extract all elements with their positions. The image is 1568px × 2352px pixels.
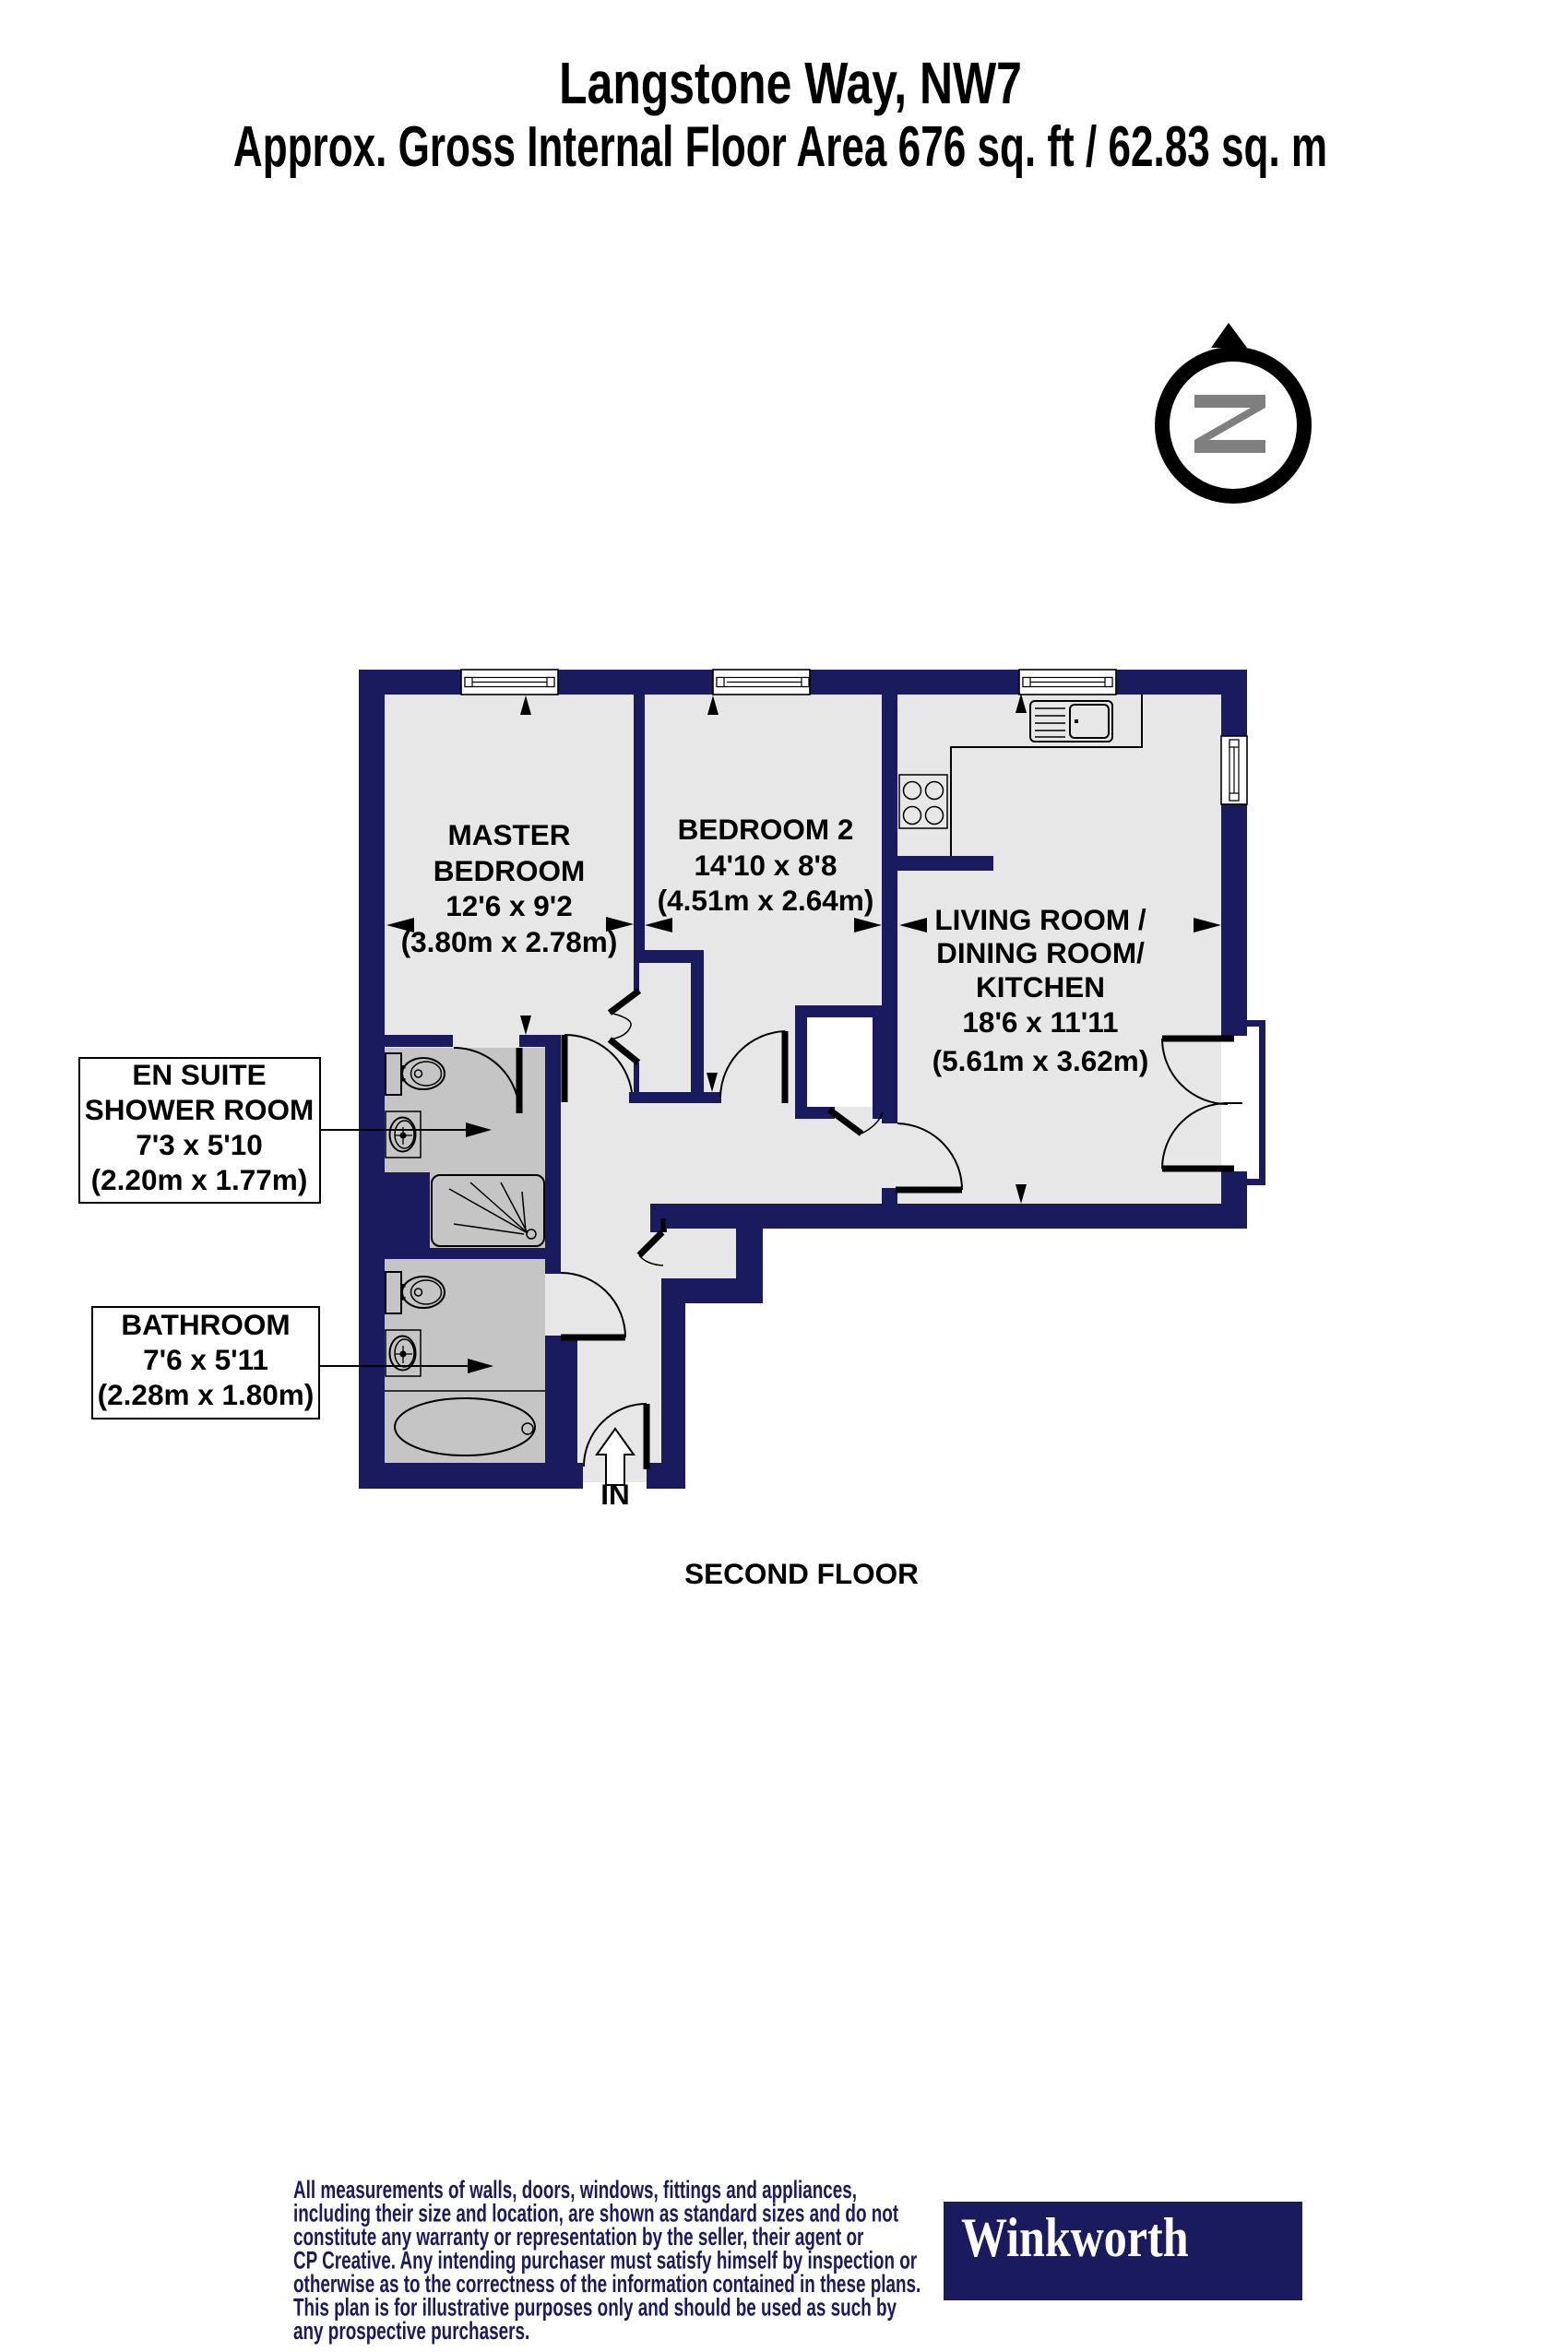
svg-text:BATHROOM: BATHROOM <box>121 1308 290 1341</box>
svg-text:(4.51m x 2.64m): (4.51m x 2.64m) <box>658 884 874 917</box>
svg-text:7'6 x 5'11: 7'6 x 5'11 <box>143 1343 268 1376</box>
svg-text:Langstone Way, NW7: Langstone Way, NW7 <box>559 51 1022 116</box>
svg-text:18'6 x 11'11: 18'6 x 11'11 <box>962 1005 1118 1039</box>
svg-text:12'6 x 9'2: 12'6 x 9'2 <box>445 889 573 922</box>
svg-text:Winkworth: Winkworth <box>961 2207 1189 2268</box>
svg-text:BEDROOM: BEDROOM <box>434 854 586 887</box>
svg-text:IN: IN <box>600 1478 630 1511</box>
svg-text:LIVING ROOM /: LIVING ROOM / <box>934 903 1146 936</box>
svg-text:BEDROOM 2: BEDROOM 2 <box>678 813 854 846</box>
svg-text:14'10 x 8'8: 14'10 x 8'8 <box>694 849 837 882</box>
svg-text:KITCHEN: KITCHEN <box>976 970 1105 1004</box>
svg-text:(2.28m x 1.80m): (2.28m x 1.80m) <box>98 1378 315 1411</box>
svg-text:any prospective purchasers.: any prospective purchasers. <box>293 2317 529 2345</box>
svg-text:EN SUITE: EN SUITE <box>132 1058 266 1091</box>
svg-text:DINING ROOM/: DINING ROOM/ <box>936 936 1145 969</box>
svg-text:SECOND FLOOR: SECOND FLOOR <box>684 1557 919 1590</box>
svg-text:MASTER: MASTER <box>448 818 571 851</box>
svg-text:7'3 x 5'10: 7'3 x 5'10 <box>136 1128 263 1161</box>
svg-text:SHOWER ROOM: SHOWER ROOM <box>85 1093 315 1126</box>
svg-text:(3.80m x 2.78m): (3.80m x 2.78m) <box>401 925 618 958</box>
svg-text:(2.20m x 1.77m): (2.20m x 1.77m) <box>91 1163 308 1196</box>
svg-text:(5.61m x 3.62m): (5.61m x 3.62m) <box>932 1044 1149 1077</box>
svg-text:Approx. Gross Internal Floor A: Approx. Gross Internal Floor Area 676 sq… <box>233 115 1327 179</box>
